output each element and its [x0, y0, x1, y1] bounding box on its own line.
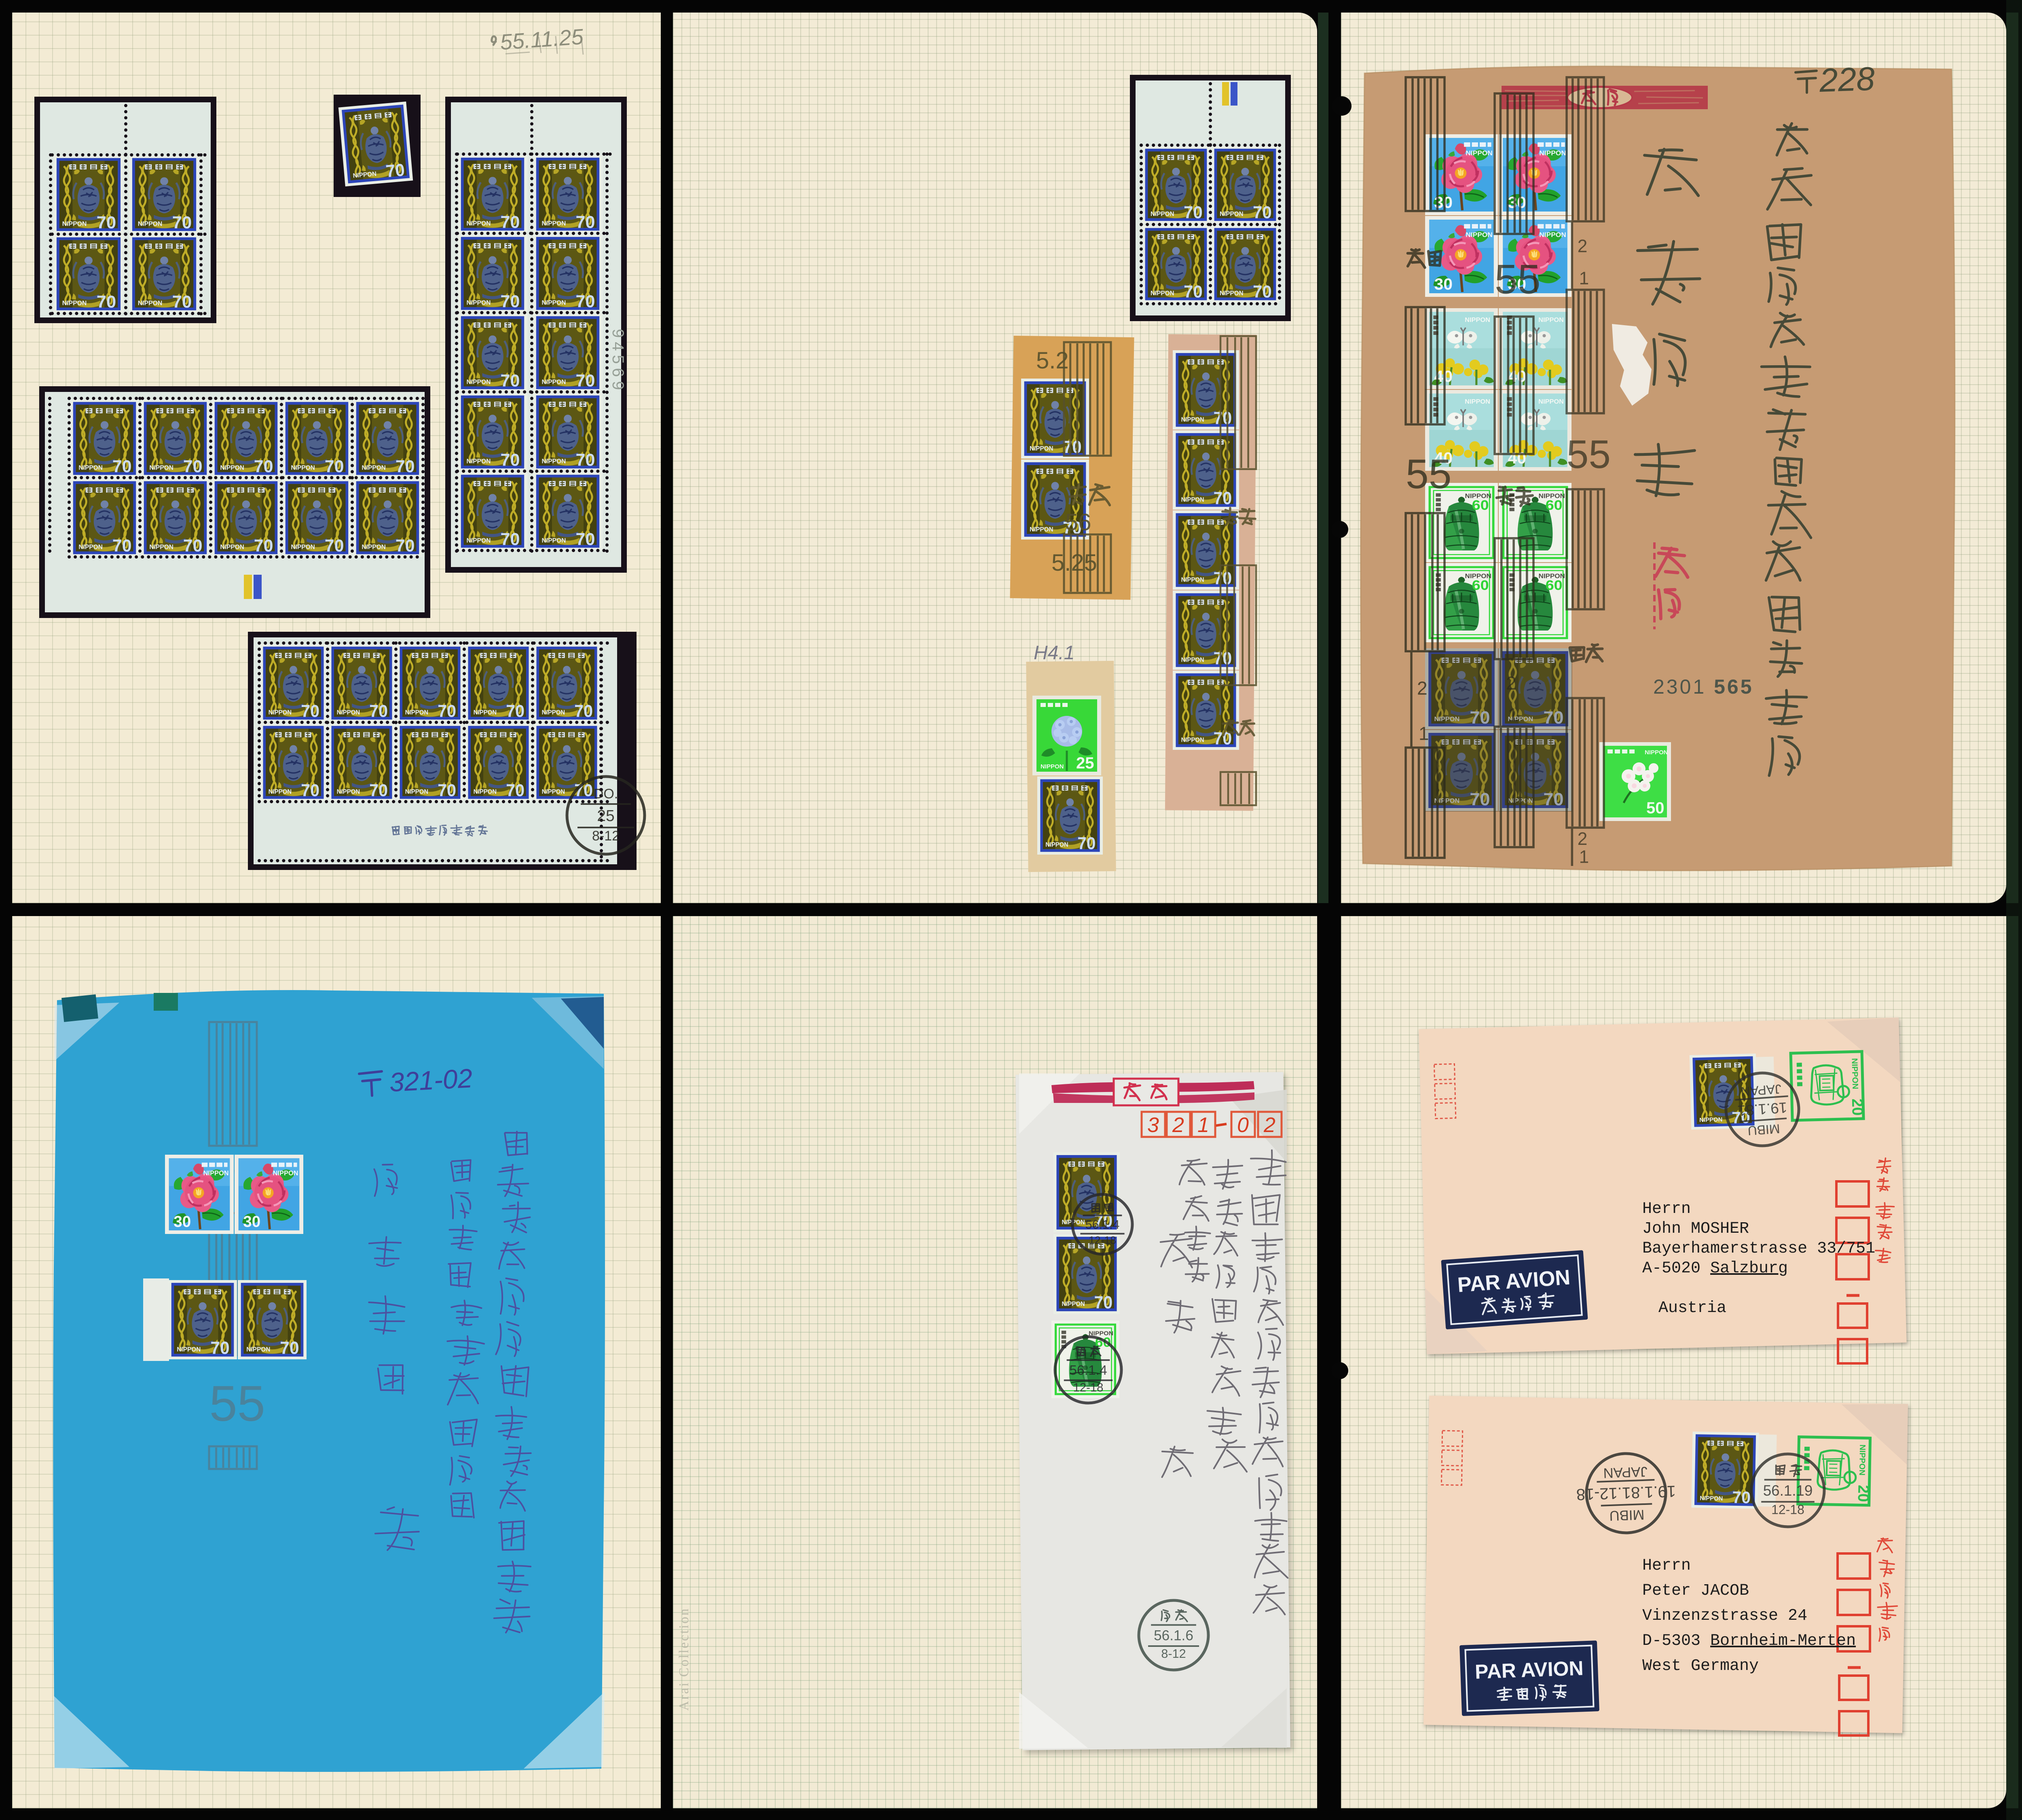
svg-text:55: 55 [1406, 451, 1451, 497]
svg-text:1: 1 [1579, 847, 1589, 867]
svg-text:2: 2 [1417, 677, 1428, 698]
svg-text:1: 1 [1508, 704, 1518, 725]
svg-text:2: 2 [1578, 236, 1588, 256]
svg-text:55: 55 [1567, 432, 1611, 476]
svg-text:55: 55 [1495, 256, 1540, 303]
svg-text:1: 1 [1579, 269, 1589, 288]
svg-text:56: 56 [1065, 509, 1091, 535]
svg-text:1: 1 [1419, 723, 1429, 744]
svg-text:DO.: DO. [594, 786, 618, 802]
svg-text:2: 2 [1578, 829, 1588, 849]
svg-text:94569: 94569 [609, 329, 627, 394]
svg-text:5.2: 5.2 [1036, 347, 1069, 374]
svg-text:2: 2 [1506, 673, 1516, 694]
svg-text:55.11.25: 55.11.25 [499, 25, 585, 55]
svg-text:25: 25 [597, 807, 614, 825]
svg-text:PAR AVION: PAR AVION [1474, 1657, 1584, 1683]
svg-text:8-12: 8-12 [592, 828, 620, 844]
svg-text:5.25: 5.25 [1051, 550, 1097, 576]
svg-text:H4.1: H4.1 [1034, 642, 1074, 664]
